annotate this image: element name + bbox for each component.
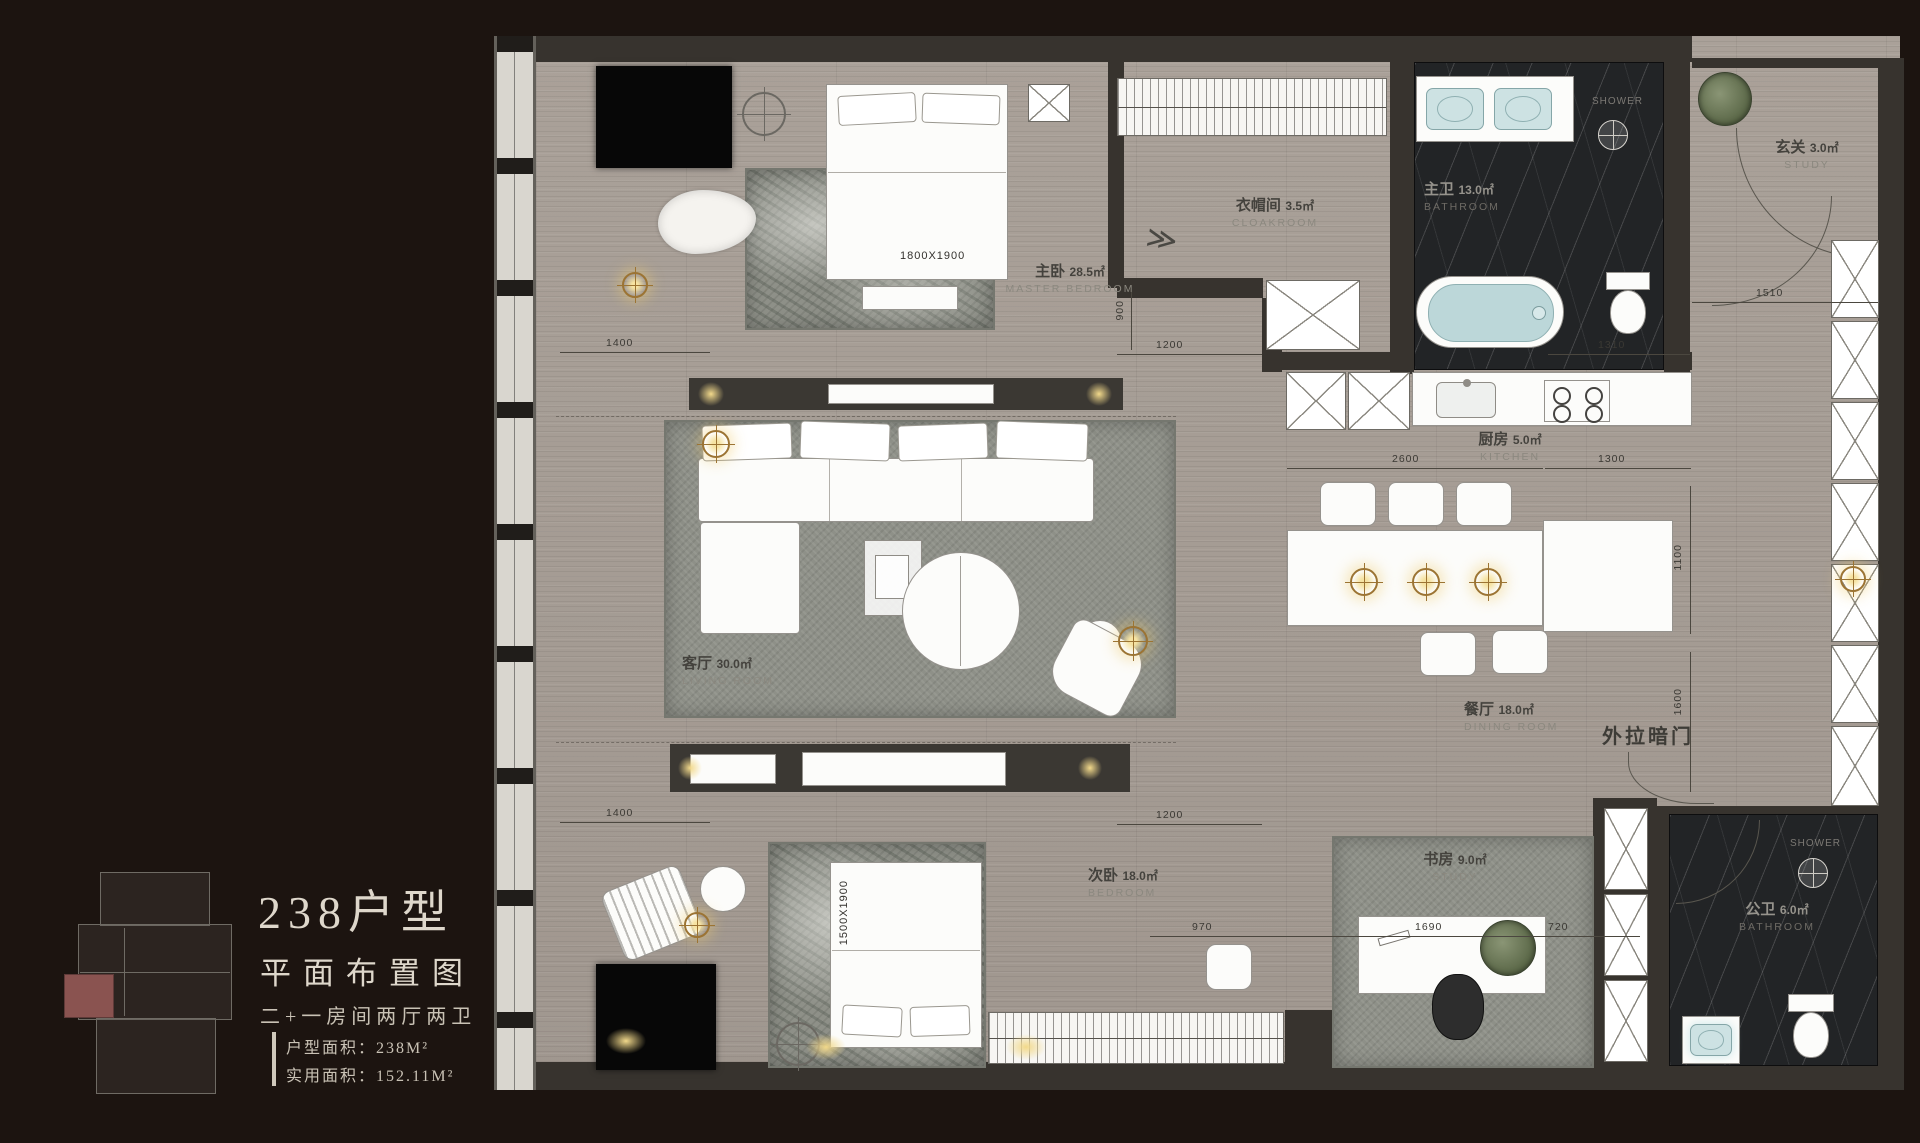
- plan-subtitle: 平面布置图: [260, 948, 475, 993]
- study-storage-cell-1: [1604, 808, 1648, 890]
- dim-top-vert: 900: [1114, 300, 1126, 321]
- tv-bed2: [596, 964, 716, 1070]
- media-console-cabinet: [828, 384, 994, 404]
- island-dresser-cloakroom: [1266, 280, 1360, 350]
- dim-line: [1548, 354, 1690, 355]
- cooktop: [1544, 380, 1610, 422]
- cloakroom-en: CLOAKROOM: [1190, 217, 1360, 231]
- coffee-table-split-line: [960, 556, 961, 666]
- dim-line: [560, 822, 710, 823]
- living-en: LIVING ROOM: [682, 675, 832, 689]
- sink-master-1: [1426, 88, 1484, 130]
- pillow-master-2: [922, 93, 1001, 126]
- lamp-sofa-icon: [702, 430, 730, 458]
- console2-downlight-left: [678, 756, 702, 780]
- dining-area: 18.0㎡: [1498, 703, 1533, 717]
- bed-second-size-label: 1500X1900: [838, 880, 850, 945]
- study-area: 9.0㎡: [1458, 853, 1487, 867]
- bathtub-drain: [1532, 306, 1546, 320]
- blanket-line-master: [828, 172, 1006, 173]
- master-bedroom-name: 主卧: [1035, 263, 1065, 280]
- label-cloakroom: 衣帽间 3.5㎡ CLOAKROOM: [1190, 196, 1360, 230]
- dim-top-mid: 1200: [1156, 339, 1183, 351]
- dim-bottom-left: 1400: [606, 807, 633, 819]
- dim-top-left: 1400: [606, 337, 633, 349]
- wall-study-bath: [1650, 806, 1670, 1068]
- dim-desk-width: 1690: [1412, 921, 1445, 933]
- label-living: 客厅 30.0㎡ LIVING ROOM: [676, 654, 832, 688]
- dim-desk-left: 970: [1192, 921, 1213, 933]
- wall-top-right: [1692, 58, 1904, 68]
- label-entry: 玄关 3.0㎡ STUDY: [1732, 138, 1882, 172]
- dining-name: 餐厅: [1464, 701, 1494, 718]
- living-area: 30.0㎡: [716, 657, 751, 671]
- toilet-master-bowl: [1610, 290, 1646, 334]
- tv-master: [596, 66, 732, 168]
- wall-right: [1878, 58, 1904, 1084]
- ceiling-fan-master-icon: [742, 92, 786, 136]
- chevron-marks-icon: ≫: [1143, 220, 1180, 260]
- hidden-door-label: 外拉暗门: [1602, 720, 1694, 749]
- burner: [1585, 405, 1603, 423]
- storage-cell: [1831, 240, 1879, 318]
- floorplan-canvas: { "panel": { "title": "238户型", "subtitle…: [0, 0, 1920, 1143]
- master-bedroom-area: 28.5㎡: [1070, 265, 1105, 279]
- pendant-light-2-icon: [1412, 568, 1440, 596]
- wall-pubbath-top: [1669, 806, 1879, 814]
- sofa-back-cushion-4: [995, 420, 1088, 461]
- cloakroom-area: 3.5㎡: [1285, 199, 1314, 213]
- blanket-line-bed2: [832, 950, 980, 951]
- dim-line: [1287, 468, 1543, 469]
- master-bath-en: BATHROOM: [1424, 201, 1584, 215]
- floor-lamp-master-icon: [622, 272, 648, 298]
- floor-lamp-bed2-icon: [684, 912, 710, 938]
- wall-bottom: [536, 1062, 1904, 1090]
- dim-right-mid: 1100: [1672, 544, 1684, 571]
- plan-spec: 二+一房间两厅两卫: [260, 1000, 476, 1029]
- public-bath-name: 公卫: [1745, 901, 1775, 918]
- label-kitchen: 厨房 5.0㎡ KITCHEN: [1430, 430, 1590, 464]
- storage-cell: [1831, 645, 1879, 723]
- sofa-seat: [698, 458, 1094, 522]
- kitchen-island: [1543, 520, 1673, 632]
- wall-bath-entry: [1664, 62, 1690, 374]
- wall-bed2-block: [1285, 1010, 1335, 1066]
- storage-cell: [1831, 402, 1879, 480]
- dim-line: [1690, 652, 1691, 792]
- sofa-back-cushion-3: [897, 422, 988, 461]
- dashed-line-living-top: [556, 416, 1176, 417]
- pillow-master-1: [837, 92, 916, 126]
- pillow-bed2-2: [909, 1005, 970, 1037]
- shower-head-public-icon: [1798, 858, 1828, 888]
- bench-master: [862, 286, 958, 310]
- downlight-column-icon: [1840, 566, 1866, 592]
- kitchen-en: KITCHEN: [1430, 451, 1590, 465]
- label-study: 书房 9.0㎡ STUDY: [1380, 850, 1530, 884]
- coffee-table-round: [902, 552, 1020, 670]
- low-cabinet-bed2: [802, 752, 1006, 786]
- burner: [1553, 405, 1571, 423]
- dim-line: [1545, 468, 1691, 469]
- label-master-bedroom: 主卧 28.5㎡ MASTER BEDROOM: [980, 262, 1160, 296]
- sofa-chaise: [700, 522, 800, 634]
- key-plan-block-bottom: [96, 1018, 216, 1094]
- toilet-public-tank: [1788, 994, 1834, 1012]
- dim-line: [1150, 936, 1640, 937]
- dim-kitchen-left: 2600: [1392, 453, 1419, 465]
- bedroom2-name: 次卧: [1088, 867, 1118, 884]
- console2-downlight-right: [1078, 756, 1102, 780]
- shower-head-master-icon: [1598, 120, 1628, 150]
- storage-cell: [1831, 321, 1879, 399]
- public-bath-area: 6.0㎡: [1780, 903, 1809, 917]
- gross-area-label: 户型面积：238M²: [286, 1034, 429, 1058]
- console-downlight-left: [698, 382, 724, 406]
- sofa-back-cushion-2: [799, 420, 890, 461]
- bottom-downlight-1: [606, 1028, 646, 1054]
- entry-area: 3.0㎡: [1810, 141, 1839, 155]
- study-en: STUDY: [1380, 871, 1530, 885]
- master-bath-area: 13.0㎡: [1458, 183, 1493, 197]
- cloakroom-name: 衣帽间: [1236, 197, 1281, 214]
- chair-dining-top-1: [1320, 482, 1376, 526]
- chair-dining-top-3: [1456, 482, 1512, 526]
- storage-cell: [1831, 483, 1879, 561]
- pouf-square-corridor: [1206, 944, 1252, 990]
- entry-name: 玄关: [1775, 139, 1805, 156]
- wall-bath-left: [1390, 62, 1414, 374]
- key-plan-unit-highlight: [64, 974, 114, 1018]
- low-cabinet-bed2-left: [690, 754, 776, 784]
- label-bedroom2: 次卧 18.0㎡ BEDROOM: [1080, 866, 1258, 900]
- chair-dining-bottom-1: [1420, 632, 1476, 676]
- dim-desk-right: 720: [1548, 921, 1569, 933]
- kitchen-tall-cabinet-2: [1348, 372, 1410, 430]
- dim-line: [1117, 354, 1262, 355]
- master-bath-name: 主卫: [1424, 181, 1454, 198]
- plant-desk-study: [1480, 920, 1536, 976]
- dim-line: [1690, 486, 1691, 634]
- kitchen-faucet: [1463, 379, 1471, 387]
- pendant-light-3-icon: [1474, 568, 1502, 596]
- label-public-bath: 公卫 6.0㎡ BATHROOM: [1692, 900, 1862, 934]
- entry-en: STUDY: [1732, 159, 1882, 173]
- wardrobe-cloakroom: [1117, 78, 1387, 136]
- master-bedroom-en: MASTER BEDROOM: [980, 283, 1160, 297]
- window-wall-left: [494, 36, 536, 1090]
- dim-right-upper: 1310: [1598, 339, 1625, 351]
- study-storage-cell-3: [1604, 980, 1648, 1062]
- storage-cell: [1831, 726, 1879, 806]
- sink-public: [1690, 1024, 1732, 1056]
- bottom-downlight-3: [1006, 1034, 1046, 1060]
- wall-top: [536, 36, 1692, 62]
- label-dining: 餐厅 18.0㎡ DINING ROOM: [1456, 700, 1624, 734]
- dresser-master: [1028, 84, 1070, 122]
- lamp-living-icon: [1118, 626, 1148, 656]
- chair-study: [1432, 974, 1484, 1040]
- shower-label-public: SHOWER: [1790, 838, 1841, 849]
- bedroom2-area: 18.0㎡: [1122, 869, 1157, 883]
- living-name: 客厅: [682, 655, 712, 672]
- dashed-line-living-bottom: [556, 742, 1176, 743]
- plant-entry: [1698, 72, 1752, 126]
- pouf-bed2: [700, 866, 746, 912]
- storage-column-right: [1831, 240, 1881, 806]
- dim-right-low: 1600: [1672, 688, 1684, 715]
- net-area-label: 实用面积：152.11M²: [286, 1062, 454, 1086]
- key-plan: [64, 870, 244, 1098]
- dim-line: [560, 352, 710, 353]
- kitchen-name: 厨房: [1478, 431, 1508, 448]
- key-plan-inner-line2: [80, 972, 230, 973]
- bed-master-size-label: 1800X1900: [900, 250, 965, 262]
- sink-master-2: [1494, 88, 1552, 130]
- dim-top-right: 1510: [1756, 287, 1783, 299]
- study-name: 书房: [1423, 851, 1453, 868]
- dining-en: DINING ROOM: [1464, 721, 1624, 735]
- kitchen-tall-cabinet-1: [1286, 372, 1346, 430]
- pillow-bed2-1: [841, 1004, 902, 1037]
- kitchen-sink: [1436, 382, 1496, 418]
- console-downlight-right: [1086, 382, 1112, 406]
- burner: [1585, 387, 1603, 405]
- pendant-light-1-icon: [1350, 568, 1378, 596]
- dim-line: [1131, 292, 1132, 350]
- bedroom2-en: BEDROOM: [1088, 887, 1258, 901]
- key-plan-block-top: [100, 872, 210, 926]
- burner: [1553, 387, 1571, 405]
- dim-bottom-mid: 1200: [1156, 809, 1183, 821]
- bottom-downlight-2: [806, 1034, 846, 1060]
- toilet-master-tank: [1606, 272, 1650, 290]
- label-master-bath: 主卫 13.0㎡ BATHROOM: [1416, 180, 1584, 214]
- dim-line: [1117, 824, 1262, 825]
- kitchen-area: 5.0㎡: [1513, 433, 1542, 447]
- chair-dining-top-2: [1388, 482, 1444, 526]
- public-bath-en: BATHROOM: [1692, 921, 1862, 935]
- study-storage-cell-2: [1604, 894, 1648, 976]
- dim-line: [1692, 302, 1878, 303]
- shower-label-master: SHOWER: [1592, 96, 1643, 107]
- panel-divider: [272, 1032, 276, 1086]
- dim-kitchen-right: 1300: [1598, 453, 1625, 465]
- toilet-public-bowl: [1793, 1012, 1829, 1058]
- chair-dining-bottom-2: [1492, 630, 1548, 674]
- plan-title: 238户型: [258, 876, 454, 942]
